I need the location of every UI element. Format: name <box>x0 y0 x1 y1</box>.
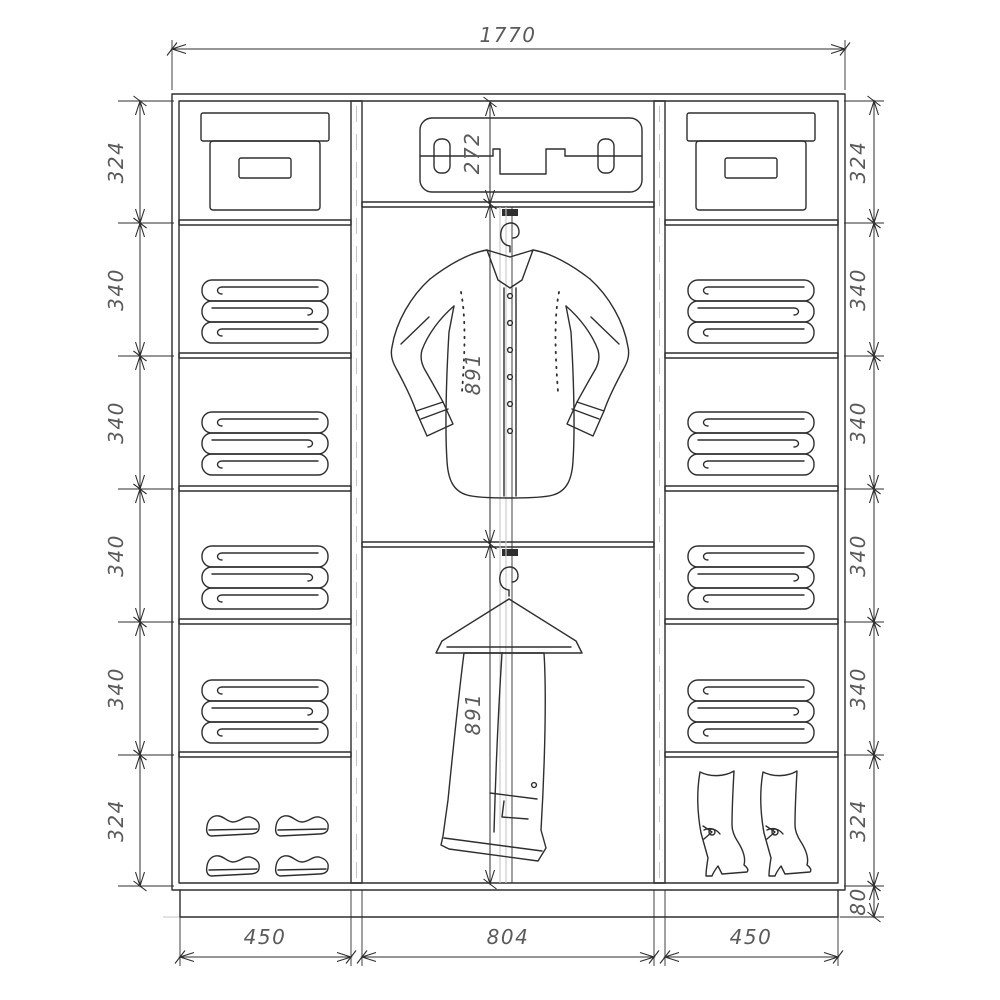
suitcase-icon <box>420 118 642 192</box>
folded-clothes-icon <box>688 280 814 343</box>
dim-label-bottom-left: 450 <box>244 925 287 949</box>
shirt-on-hanger-icon <box>391 223 628 498</box>
dress-shoe-icon <box>207 816 260 836</box>
dimension-bottom-widths: 450 804 450 <box>180 890 838 966</box>
hanger-hook-icon <box>500 567 518 596</box>
dim-label-right-6: 324 <box>846 799 870 842</box>
dress-shoe-icon <box>276 856 329 876</box>
dimension-center-column: 272 891 891 <box>460 102 490 884</box>
dim-label-bottom-right: 450 <box>730 925 773 949</box>
folded-clothes-icon <box>202 412 328 475</box>
dim-label-left-1: 324 <box>104 141 128 184</box>
dim-label-right-1: 324 <box>846 141 870 184</box>
drawing-canvas: 1770 324 340 340 340 340 324 <box>0 0 1000 1000</box>
dim-label-right-2: 340 <box>846 268 870 311</box>
dim-label-hanging-upper: 891 <box>461 353 485 396</box>
hanger-rod-bracket <box>502 209 518 216</box>
dim-label-left-4: 340 <box>104 534 128 577</box>
folded-clothes-icon <box>202 546 328 609</box>
hanger-rod-bracket <box>502 549 518 556</box>
dim-label-right-5: 340 <box>846 667 870 710</box>
folded-clothes-icon <box>688 412 814 475</box>
dim-label-total-width: 1770 <box>480 23 537 47</box>
storage-box-icon <box>201 113 329 210</box>
dress-shoe-icon <box>207 856 260 876</box>
storage-box-icon <box>687 113 815 210</box>
folded-clothes-icon <box>202 680 328 743</box>
dimension-chain-right: 324 340 340 340 340 324 80 <box>840 101 884 917</box>
wardrobe-dimension-drawing: 1770 324 340 340 340 340 324 <box>0 0 1000 1000</box>
dim-label-left-6: 324 <box>104 799 128 842</box>
heeled-boot-icon <box>761 771 811 876</box>
dim-label-left-3: 340 <box>104 401 128 444</box>
folded-clothes-icon <box>688 680 814 743</box>
hanger-hook-icon <box>501 223 519 252</box>
dim-label-hanging-lower: 891 <box>461 693 485 736</box>
dress-shoe-icon <box>276 816 329 836</box>
dim-label-bottom-center: 804 <box>487 925 530 949</box>
wardrobe-frame <box>163 94 878 917</box>
folded-clothes-icon <box>202 280 328 343</box>
dim-label-left-2: 340 <box>104 268 128 311</box>
dim-label-top-shelf-height: 272 <box>460 132 484 175</box>
dimension-total-width: 1770 <box>172 23 845 90</box>
folded-clothes-icon <box>688 546 814 609</box>
dim-label-right-3: 340 <box>846 401 870 444</box>
heeled-boot-icon <box>698 771 748 876</box>
dim-label-right-4: 340 <box>846 534 870 577</box>
trousers-on-hanger-icon <box>436 567 582 861</box>
dim-label-left-5: 340 <box>104 667 128 710</box>
dimension-chain-left: 324 340 340 340 340 324 <box>104 101 174 886</box>
plinth <box>163 890 878 917</box>
dim-label-plinth-height: 80 <box>846 887 870 915</box>
